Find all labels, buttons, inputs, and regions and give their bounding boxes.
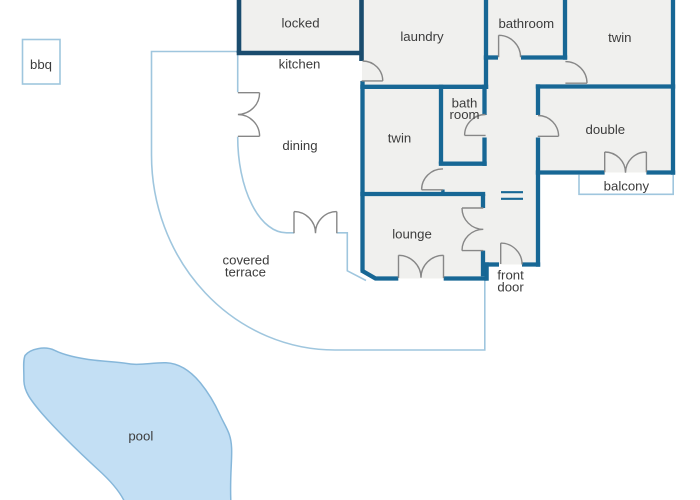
svg-text:kitchen: kitchen (279, 57, 321, 72)
svg-text:locked: locked (281, 15, 319, 30)
svg-text:twin: twin (388, 131, 411, 146)
svg-text:double: double (585, 122, 625, 137)
svg-text:terrace: terrace (225, 264, 266, 279)
svg-text:bbq: bbq (30, 57, 52, 72)
svg-text:dining: dining (282, 138, 317, 153)
svg-text:pool: pool (128, 429, 153, 444)
svg-text:room: room (449, 107, 479, 122)
svg-text:twin: twin (608, 30, 631, 45)
svg-text:door: door (497, 279, 524, 294)
svg-text:balcony: balcony (604, 178, 650, 193)
svg-text:laundry: laundry (400, 29, 444, 44)
svg-text:lounge: lounge (392, 226, 432, 241)
svg-text:bathroom: bathroom (498, 16, 554, 31)
